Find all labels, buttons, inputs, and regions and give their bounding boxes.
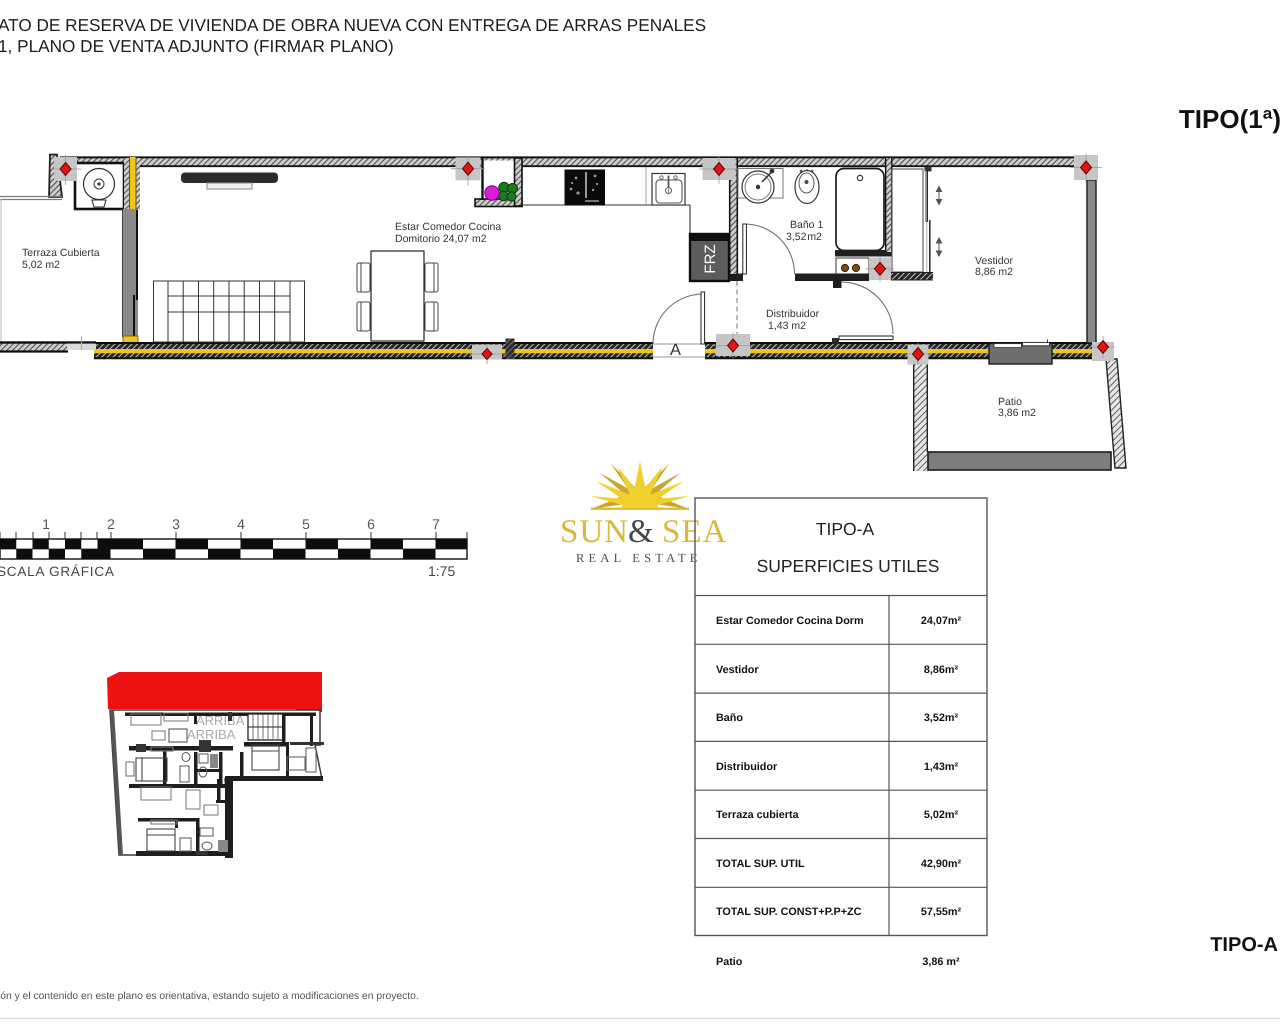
svg-text:Estar Comedor Cocina Dorm: Estar Comedor Cocina Dorm bbox=[716, 615, 864, 627]
svg-text:8,86m²: 8,86m² bbox=[924, 664, 959, 676]
svg-text:Estar Comedor Cocina: Estar Comedor Cocina bbox=[395, 221, 501, 233]
svg-text:1: 1 bbox=[42, 516, 50, 532]
svg-text:3,52 m2: 3,52 m2 bbox=[786, 231, 822, 243]
svg-text:ARRIBA: ARRIBA bbox=[187, 727, 236, 742]
svg-text:Terraza cubierta: Terraza cubierta bbox=[716, 809, 800, 821]
svg-text:3,86 m²: 3,86 m² bbox=[922, 956, 960, 968]
svg-text:Domitorio 24,07 m2: Domitorio 24,07 m2 bbox=[395, 233, 487, 245]
svg-text:1, PLANO DE VENTA ADJUNTO (FIR: 1, PLANO DE VENTA ADJUNTO (FIRMAR PLANO) bbox=[0, 36, 394, 56]
svg-text:Vestidor: Vestidor bbox=[716, 664, 759, 676]
svg-text:Patio: Patio bbox=[716, 956, 743, 968]
svg-text:Baño: Baño bbox=[716, 712, 743, 724]
svg-text:8,86 m2: 8,86 m2 bbox=[975, 266, 1013, 278]
svg-text:7: 7 bbox=[432, 516, 440, 532]
svg-text:1,43 m2: 1,43 m2 bbox=[768, 320, 806, 332]
svg-text:SUPERFICIES UTILES: SUPERFICIES UTILES bbox=[757, 556, 940, 576]
svg-text:Baño 1: Baño 1 bbox=[790, 219, 823, 231]
svg-text:3,86 m2: 3,86 m2 bbox=[998, 407, 1036, 419]
svg-text:TIPO-A: TIPO-A bbox=[816, 519, 875, 539]
svg-text:1,43m²: 1,43m² bbox=[924, 761, 959, 773]
svg-text:Terraza Cubierta: Terraza Cubierta bbox=[22, 247, 100, 259]
svg-text:SUN: SUN bbox=[560, 514, 629, 550]
svg-text:FRZ: FRZ bbox=[702, 244, 719, 273]
svg-text:ARRIBA: ARRIBA bbox=[196, 713, 245, 728]
svg-text:6: 6 bbox=[367, 516, 375, 532]
svg-text:REAL ESTATE: REAL ESTATE bbox=[576, 551, 702, 565]
svg-text:TOTAL SUP. UTIL: TOTAL SUP. UTIL bbox=[716, 858, 805, 870]
svg-text:ATO DE RESERVA DE VIVIENDA DE: ATO DE RESERVA DE VIVIENDA DE OBRA NUEVA… bbox=[0, 15, 706, 35]
svg-text:2: 2 bbox=[107, 516, 115, 532]
svg-text:&: & bbox=[628, 514, 654, 550]
svg-text:TIPO(1ª): TIPO(1ª) bbox=[1179, 104, 1280, 134]
svg-text:24,07m²: 24,07m² bbox=[921, 615, 962, 627]
svg-text:5,02m²: 5,02m² bbox=[924, 809, 959, 821]
svg-text:1:75: 1:75 bbox=[428, 563, 455, 579]
svg-text:A: A bbox=[670, 341, 681, 359]
svg-text:5,02 m2: 5,02 m2 bbox=[22, 259, 60, 271]
svg-text:57,55m²: 57,55m² bbox=[921, 906, 962, 918]
svg-text:Distribuidor: Distribuidor bbox=[766, 308, 820, 320]
svg-text:Distribuidor: Distribuidor bbox=[716, 761, 778, 773]
svg-text:4: 4 bbox=[237, 516, 245, 532]
svg-text:5: 5 bbox=[302, 516, 310, 532]
svg-text:3,52m²: 3,52m² bbox=[924, 712, 959, 724]
svg-text:TOTAL SUP. CONST+P.P+ZC: TOTAL SUP. CONST+P.P+ZC bbox=[716, 906, 862, 918]
svg-text:42,90m²: 42,90m² bbox=[921, 858, 962, 870]
svg-text:TIPO-A: TIPO-A bbox=[1210, 934, 1278, 956]
svg-text:SCALA GRÁFICA: SCALA GRÁFICA bbox=[0, 564, 115, 579]
svg-text:ión y el contenido en este pla: ión y el contenido en este plano es orie… bbox=[0, 991, 419, 1002]
svg-text:3: 3 bbox=[172, 516, 180, 532]
